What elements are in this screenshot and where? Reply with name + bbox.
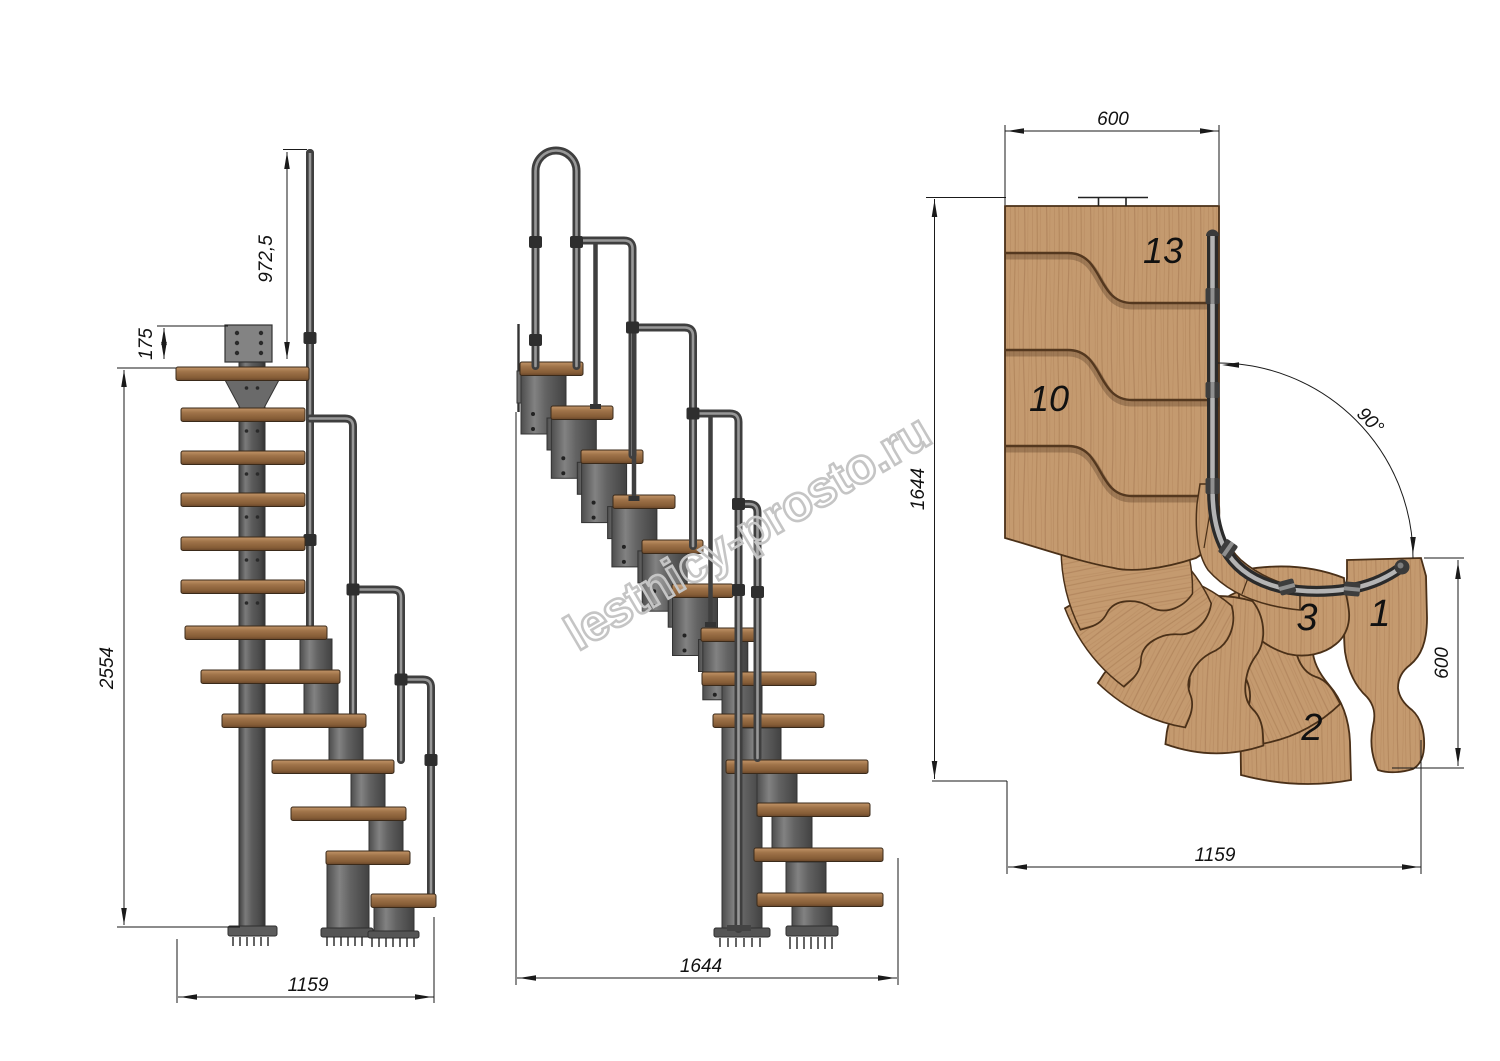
svg-text:175: 175 (136, 328, 157, 360)
svg-text:1159: 1159 (1195, 845, 1236, 866)
svg-text:972,5: 972,5 (256, 235, 277, 283)
svg-text:600: 600 (1432, 647, 1453, 679)
svg-text:2554: 2554 (97, 647, 118, 690)
svg-text:13: 13 (1143, 230, 1183, 271)
svg-text:1: 1 (1369, 593, 1390, 635)
svg-text:1644: 1644 (680, 956, 722, 977)
svg-text:1159: 1159 (288, 975, 329, 996)
svg-text:2: 2 (1300, 707, 1322, 749)
svg-text:1644: 1644 (908, 468, 929, 510)
svg-text:10: 10 (1029, 378, 1069, 419)
svg-text:600: 600 (1097, 109, 1129, 130)
